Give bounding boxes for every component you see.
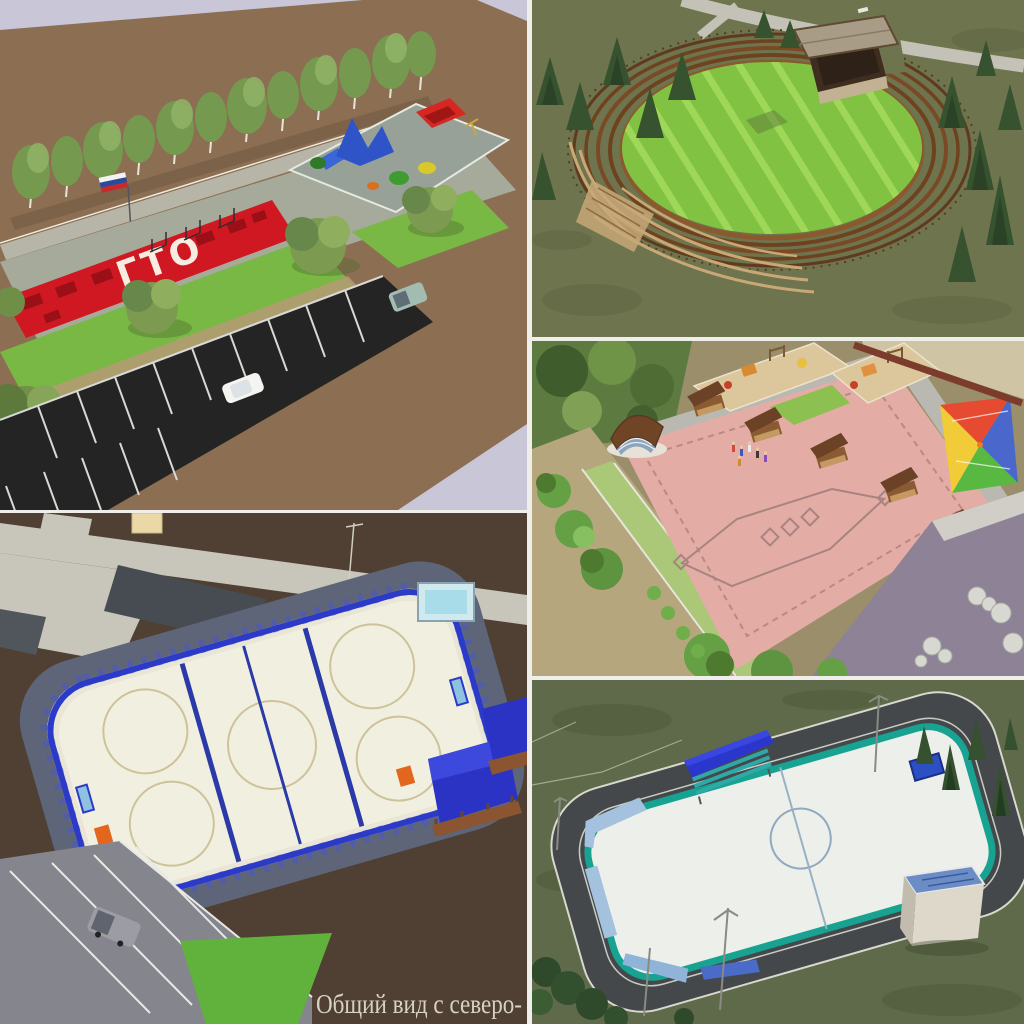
panel-fitness-park: ГТО: [0, 0, 527, 510]
rainbow-playground: [940, 397, 1018, 493]
scoreboard: [418, 583, 474, 621]
panel-hockey-rink-blue: Общий вид с северо-: [0, 513, 527, 1024]
kiosk: [132, 513, 162, 533]
panel-amphitheater: [532, 0, 1024, 337]
render-collage: ГТО: [0, 0, 1024, 1024]
caption: Общий вид с северо-: [316, 989, 522, 1019]
panel-plaza: [532, 341, 1024, 676]
utility-building: [900, 866, 989, 956]
panel-hockey-rink-teal: [532, 680, 1024, 1024]
